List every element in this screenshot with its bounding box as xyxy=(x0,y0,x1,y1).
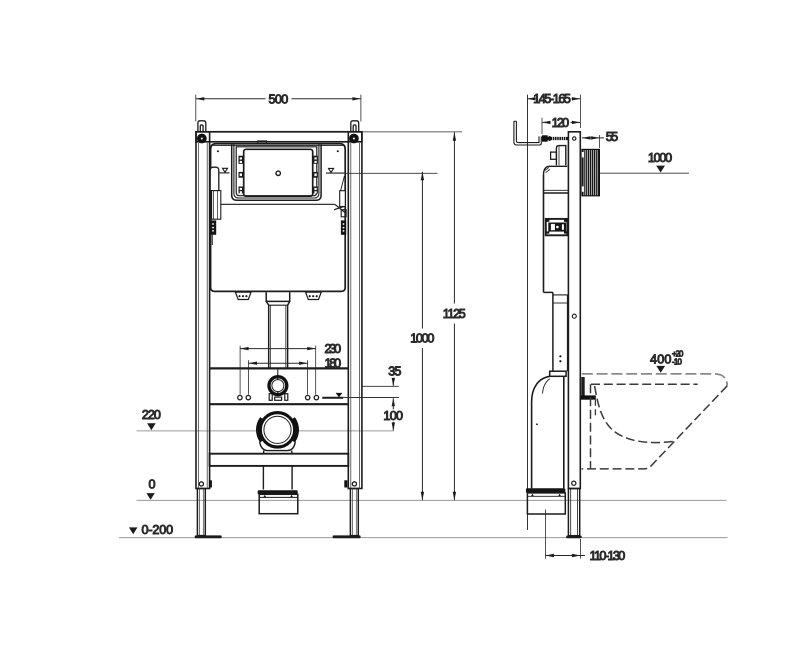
svg-text:400: 400 xyxy=(650,352,671,366)
svg-text:-10: -10 xyxy=(672,358,682,367)
svg-text:1000: 1000 xyxy=(410,332,434,346)
svg-text:500: 500 xyxy=(269,92,289,106)
svg-text:180: 180 xyxy=(325,357,342,371)
svg-text:100: 100 xyxy=(383,409,403,423)
svg-text:55: 55 xyxy=(606,130,618,144)
svg-text:220: 220 xyxy=(142,408,161,422)
svg-text:1000: 1000 xyxy=(648,151,672,165)
svg-text:35: 35 xyxy=(388,365,401,379)
svg-text:120: 120 xyxy=(552,116,570,130)
svg-text:145-165: 145-165 xyxy=(533,92,571,106)
svg-text:0: 0 xyxy=(148,478,155,492)
svg-text:0-200: 0-200 xyxy=(142,523,174,537)
svg-text:110-130: 110-130 xyxy=(590,549,626,563)
svg-text:1125: 1125 xyxy=(443,307,466,321)
svg-text:230: 230 xyxy=(325,342,342,356)
